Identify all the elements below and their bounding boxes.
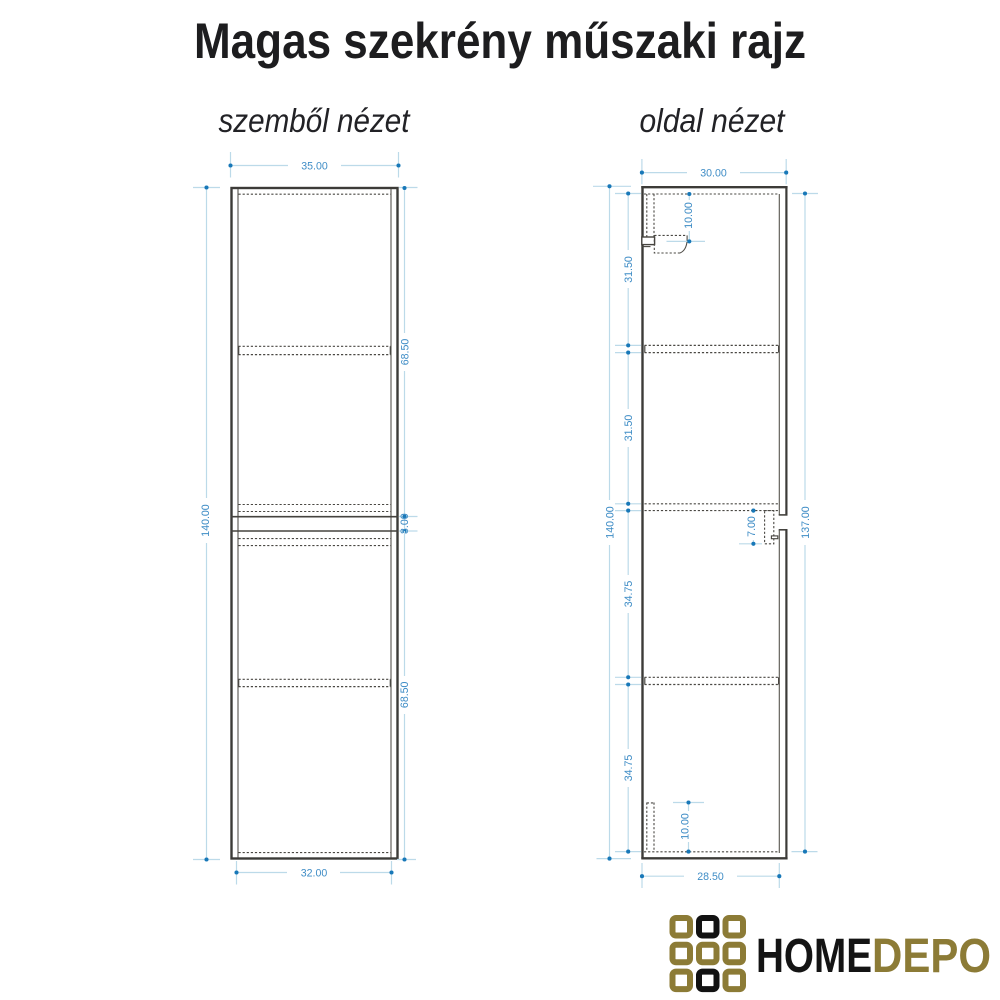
svg-text:Magas szekrény műszaki rajz: Magas szekrény műszaki rajz: [194, 13, 806, 69]
svg-text:30.00: 30.00: [700, 167, 727, 179]
svg-text:34.75: 34.75: [623, 755, 635, 782]
svg-text:DEPO: DEPO: [872, 929, 991, 983]
svg-text:31.50: 31.50: [623, 256, 635, 283]
svg-text:35.00: 35.00: [301, 160, 328, 172]
svg-text:34.75: 34.75: [623, 581, 635, 608]
svg-text:8.00: 8.00: [399, 513, 411, 534]
svg-text:oldal nézet: oldal nézet: [640, 102, 787, 139]
svg-text:10.00: 10.00: [683, 202, 695, 229]
svg-text:68.50: 68.50: [399, 339, 411, 366]
svg-text:10.00: 10.00: [679, 813, 691, 840]
svg-text:szemből nézet: szemből nézet: [219, 102, 412, 139]
svg-text:31.50: 31.50: [623, 415, 635, 442]
svg-text:7.00: 7.00: [746, 516, 758, 537]
svg-text:68.50: 68.50: [399, 681, 411, 708]
svg-text:32.00: 32.00: [301, 867, 328, 879]
svg-text:140.00: 140.00: [200, 504, 212, 537]
svg-text:137.00: 137.00: [800, 506, 812, 539]
svg-text:140.00: 140.00: [604, 506, 616, 539]
svg-text:HOME: HOME: [756, 929, 872, 983]
svg-text:28.50: 28.50: [697, 871, 724, 883]
